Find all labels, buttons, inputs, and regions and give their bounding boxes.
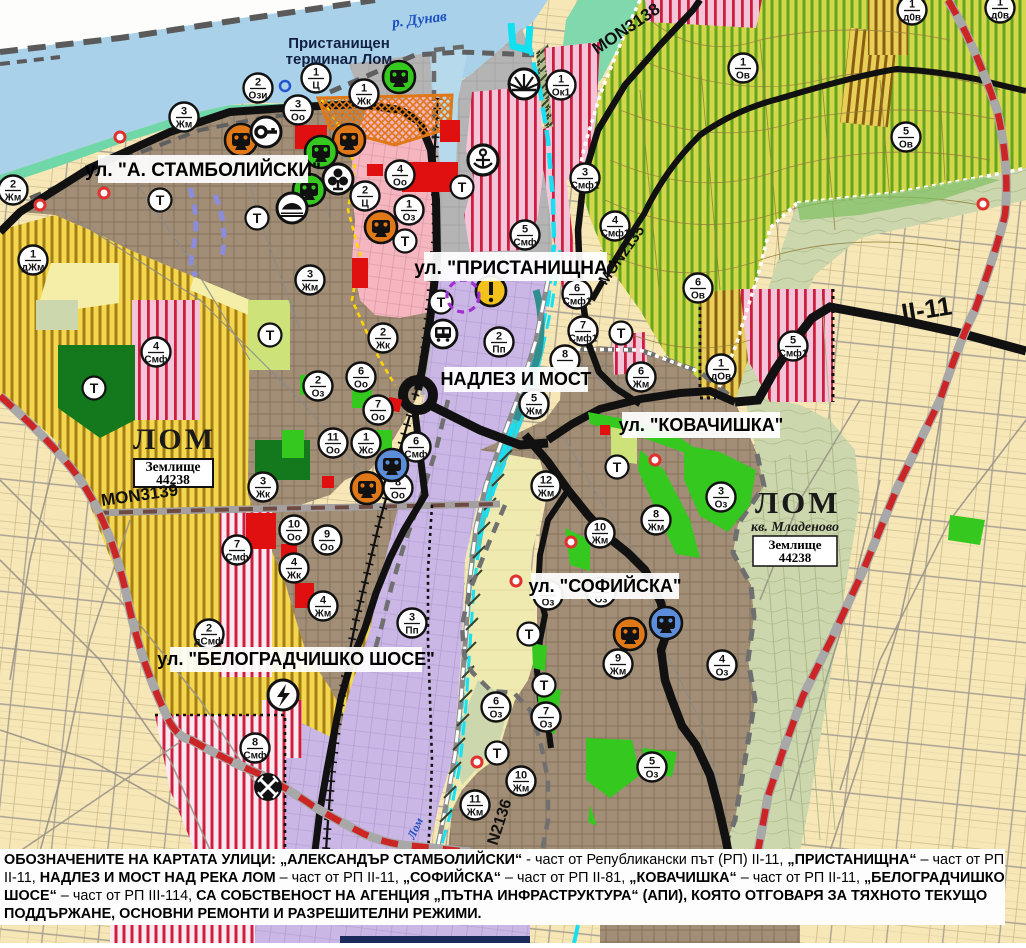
svg-text:кв. Младеново: кв. Младеново: [751, 520, 839, 535]
svg-text:Ов: Ов: [899, 140, 913, 151]
svg-text:II-11, НАДЛЕЗ И МОСТ НАД РЕКА: II-11, НАДЛЕЗ И МОСТ НАД РЕКА ЛОМ – част…: [4, 868, 1005, 886]
svg-text:ул. "СОФИЙСКА": ул. "СОФИЙСКА": [528, 575, 681, 596]
svg-text:Смф1: Смф1: [571, 180, 600, 192]
svg-text:9: 9: [615, 653, 621, 665]
svg-text:Жм: Жм: [537, 489, 554, 500]
svg-text:Ок1: Ок1: [552, 88, 571, 99]
svg-text:7: 7: [375, 399, 381, 411]
svg-text:3: 3: [307, 269, 313, 281]
svg-text:терминал Лом: терминал Лом: [286, 51, 393, 68]
svg-text:4: 4: [612, 215, 619, 227]
svg-text:3: 3: [260, 476, 266, 488]
svg-text:дСмф: дСмф: [194, 636, 224, 648]
svg-text:Оз: Оз: [715, 500, 728, 511]
svg-text:Жм: Жм: [512, 784, 529, 795]
svg-text:7: 7: [234, 539, 240, 551]
svg-text:Т: Т: [458, 179, 467, 195]
svg-text:3: 3: [718, 486, 724, 498]
svg-text:10: 10: [515, 770, 527, 782]
svg-text:1: 1: [718, 358, 724, 370]
svg-text:1: 1: [363, 432, 369, 444]
svg-text:Оо: Оо: [287, 533, 301, 544]
svg-text:10: 10: [594, 522, 606, 534]
svg-text:Жм: Жм: [175, 120, 192, 131]
svg-text:5: 5: [790, 335, 796, 347]
svg-text:4: 4: [397, 164, 404, 176]
svg-text:4: 4: [719, 654, 726, 666]
svg-text:Смф1: Смф1: [569, 333, 598, 345]
svg-text:ул. "БЕЛОГРАДЧИШКО ШОСЕ": ул. "БЕЛОГРАДЧИШКО ШОСЕ": [157, 649, 435, 669]
svg-text:Оз: Оз: [403, 213, 416, 224]
svg-text:1: 1: [558, 74, 564, 86]
svg-text:5: 5: [649, 756, 655, 768]
svg-text:Оо: Оо: [371, 413, 385, 424]
svg-text:Смф: Смф: [225, 552, 248, 564]
svg-text:1: 1: [406, 199, 412, 211]
svg-text:1: 1: [909, 0, 915, 11]
svg-text:Смф1: Смф1: [563, 296, 592, 308]
svg-text:3: 3: [582, 167, 588, 179]
svg-text:2: 2: [362, 185, 368, 197]
svg-text:ул. "КОВАЧИШКА": ул. "КОВАЧИШКА": [619, 415, 784, 435]
svg-text:7: 7: [580, 320, 586, 332]
svg-text:Жк: Жк: [255, 490, 271, 501]
svg-text:4: 4: [320, 595, 327, 607]
svg-text:Т: Т: [493, 745, 502, 761]
svg-text:9: 9: [324, 529, 330, 541]
svg-text:Смф: Смф: [144, 354, 167, 366]
svg-text:Т: Т: [156, 192, 165, 208]
svg-text:Жк: Жк: [356, 97, 372, 108]
svg-text:Жм: Жм: [525, 407, 542, 418]
svg-text:Пп: Пп: [405, 626, 418, 637]
svg-text:2: 2: [315, 375, 321, 387]
svg-text:Смф: Смф: [513, 237, 536, 249]
svg-text:8: 8: [562, 349, 568, 361]
svg-text:3: 3: [409, 612, 415, 624]
svg-text:Т: Т: [401, 233, 410, 249]
svg-text:8: 8: [252, 737, 258, 749]
svg-text:11: 11: [327, 432, 339, 444]
svg-text:6: 6: [413, 436, 419, 448]
svg-text:Смф1: Смф1: [779, 348, 808, 360]
svg-text:Оз: Оз: [490, 710, 503, 721]
svg-text:Оз: Оз: [312, 389, 325, 400]
svg-text:1: 1: [30, 249, 36, 261]
svg-text:Жм: Жм: [647, 523, 664, 534]
svg-text:Жс: Жс: [358, 446, 374, 457]
svg-text:Т: Т: [540, 677, 549, 693]
svg-text:2: 2: [255, 77, 261, 89]
svg-text:Оо: Оо: [320, 543, 334, 554]
svg-text:Оо: Оо: [391, 491, 405, 502]
svg-text:Т: Т: [90, 380, 99, 396]
svg-text:Оз: Оз: [542, 598, 555, 609]
svg-text:Т: Т: [525, 626, 534, 642]
svg-text:11: 11: [469, 794, 481, 806]
svg-text:Оо: Оо: [326, 446, 340, 457]
svg-text:ПОДДЪРЖАНЕ, ОСНОВНИ РЕМОНТИ И: ПОДДЪРЖАНЕ, ОСНОВНИ РЕМОНТИ И РАЗРЕШИТЕЛ…: [4, 906, 482, 922]
svg-text:6: 6: [574, 283, 580, 295]
svg-text:Оз: Оз: [716, 668, 729, 679]
svg-text:Жк: Жк: [375, 341, 391, 352]
svg-text:Оз: Оз: [646, 770, 659, 781]
svg-text:6: 6: [493, 696, 499, 708]
svg-text:8: 8: [653, 509, 659, 521]
svg-text:Т: Т: [253, 210, 262, 226]
svg-text:Жм: Жм: [4, 193, 21, 204]
svg-text:6: 6: [638, 366, 644, 378]
svg-text:Жм: Жм: [591, 536, 608, 547]
svg-text:4: 4: [153, 341, 160, 353]
svg-text:ЛОМ: ЛОМ: [133, 423, 216, 456]
svg-text:1: 1: [313, 67, 319, 79]
svg-text:Оо: Оо: [291, 113, 305, 124]
svg-text:6: 6: [695, 277, 701, 289]
svg-text:Ози: Ози: [249, 91, 268, 102]
svg-text:3: 3: [295, 99, 301, 111]
svg-text:2: 2: [10, 179, 16, 191]
svg-text:2: 2: [380, 327, 386, 339]
svg-text:дОв: дОв: [711, 372, 731, 383]
svg-text:ул. "А. СТАМБОЛИЙСКИ": ул. "А. СТАМБОЛИЙСКИ": [85, 159, 321, 181]
svg-text:Жк: Жк: [286, 571, 302, 582]
svg-text:Смф: Смф: [243, 750, 266, 762]
svg-text:Т: Т: [617, 325, 626, 341]
svg-text:Оз: Оз: [540, 720, 553, 731]
svg-text:Ов: Ов: [691, 291, 705, 302]
svg-text:дЖм: дЖм: [22, 263, 45, 274]
svg-text:2: 2: [496, 331, 502, 343]
svg-text:Оо: Оо: [354, 380, 368, 391]
svg-text:Ц: Ц: [361, 199, 369, 210]
svg-text:12: 12: [540, 475, 552, 487]
svg-text:5: 5: [522, 224, 528, 236]
svg-text:ул. "ПРИСТАНИЩНА": ул. "ПРИСТАНИЩНА": [414, 258, 617, 279]
svg-text:7: 7: [543, 706, 549, 718]
svg-text:6: 6: [358, 366, 364, 378]
svg-text:ОБОЗНАЧЕНИТЕ НА КАРТАТА УЛИЦИ:: ОБОЗНАЧЕНИТЕ НА КАРТАТА УЛИЦИ: „АЛЕКСАНД…: [4, 850, 1004, 868]
svg-text:Жм: Жм: [609, 667, 626, 678]
svg-text:Пп: Пп: [492, 345, 505, 356]
svg-text:5: 5: [531, 393, 537, 405]
svg-text:44238: 44238: [779, 550, 812, 565]
svg-text:ЛОМ: ЛОМ: [755, 485, 840, 520]
svg-text:5: 5: [903, 126, 909, 138]
svg-text:Жм: Жм: [632, 380, 649, 391]
svg-text:ШОСЕ“ – част от РП III-114, СА: ШОСЕ“ – част от РП III-114, СА СОБСТВЕНО…: [4, 888, 987, 904]
svg-text:1: 1: [997, 0, 1003, 9]
svg-text:1: 1: [361, 83, 367, 95]
svg-text:д0в: д0в: [903, 13, 921, 24]
svg-text:1: 1: [740, 57, 746, 69]
svg-text:3: 3: [181, 106, 187, 118]
svg-text:НАДЛЕЗ И МОСТ: НАДЛЕЗ И МОСТ: [441, 369, 592, 389]
svg-text:10: 10: [288, 519, 300, 531]
svg-text:Пристанищен: Пристанищен: [288, 35, 390, 52]
svg-text:д0в: д0в: [991, 11, 1009, 22]
svg-text:Жм: Жм: [314, 609, 331, 620]
svg-text:Оо: Оо: [393, 178, 407, 189]
svg-text:4: 4: [291, 557, 298, 569]
svg-text:Ов: Ов: [736, 71, 750, 82]
svg-text:Т: Т: [437, 294, 446, 310]
svg-text:Т: Т: [613, 459, 622, 475]
svg-text:Жм: Жм: [301, 283, 318, 294]
svg-text:Жм: Жм: [466, 808, 483, 819]
svg-text:Т: Т: [266, 327, 275, 343]
svg-text:Ц: Ц: [312, 81, 320, 92]
svg-text:2: 2: [206, 623, 212, 635]
